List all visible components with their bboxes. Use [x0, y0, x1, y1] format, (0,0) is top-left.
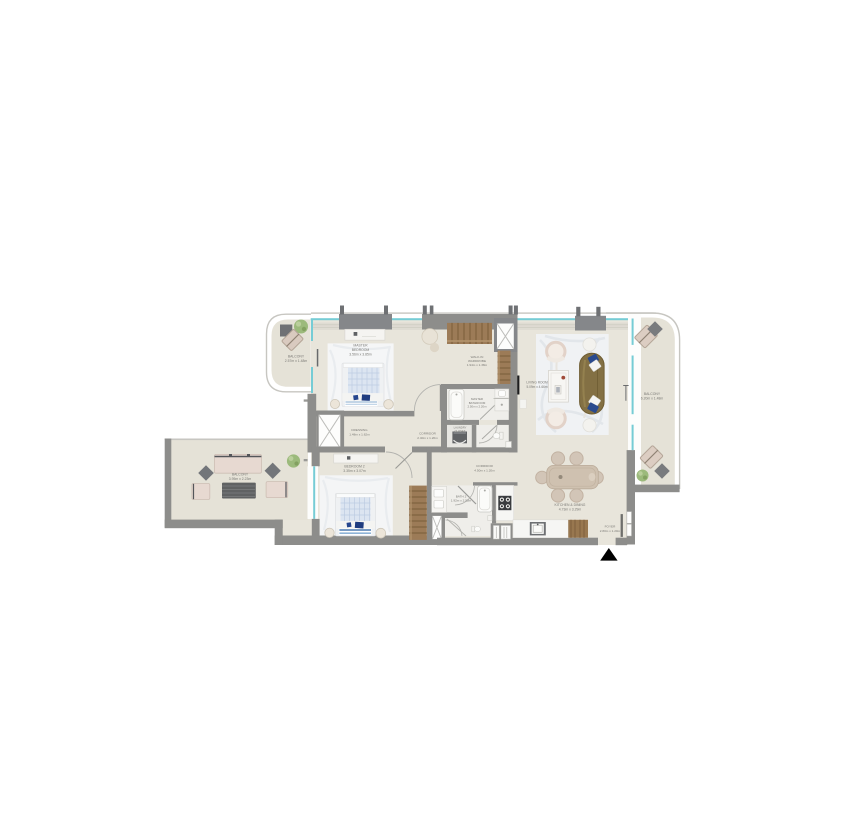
svg-text:2.40m x 1.20m: 2.40m x 1.20m — [417, 436, 438, 440]
svg-text:6.20m x 1.48m: 6.20m x 1.48m — [641, 397, 664, 401]
svg-text:LIVING ROOM: LIVING ROOM — [526, 381, 548, 385]
svg-text:1.48m x 1.62m: 1.48m x 1.62m — [349, 433, 370, 437]
svg-text:2.50m x 2.20m: 2.50m x 2.20m — [467, 405, 487, 409]
svg-text:5.09m x 4.66m: 5.09m x 4.66m — [526, 385, 547, 389]
svg-text:2.80m x 1.20m: 2.80m x 1.20m — [600, 529, 621, 533]
svg-text:3.95m x 2.23m: 3.95m x 2.23m — [229, 477, 252, 481]
svg-text:BALCONY: BALCONY — [232, 473, 249, 477]
svg-text:CORRIDOR: CORRIDOR — [419, 432, 437, 436]
svg-text:DRESSING: DRESSING — [351, 428, 368, 432]
svg-text:BEDROOM 2: BEDROOM 2 — [344, 465, 364, 469]
svg-text:BEDROOM: BEDROOM — [352, 348, 370, 352]
svg-text:2.57m x 1.48m: 2.57m x 1.48m — [285, 359, 308, 363]
svg-text:KITCHEN & DINING: KITCHEN & DINING — [555, 503, 586, 507]
svg-text:1.92m x 2.53m: 1.92m x 2.53m — [451, 499, 472, 503]
svg-text:4.50m x 1.20m: 4.50m x 1.20m — [474, 469, 495, 473]
svg-text:BALCONY: BALCONY — [644, 392, 661, 396]
svg-text:4.73m x 3.29m: 4.73m x 3.29m — [559, 508, 582, 512]
svg-text:3.35m x 3.07m: 3.35m x 3.07m — [343, 469, 366, 473]
svg-text:MASTER: MASTER — [353, 344, 368, 348]
svg-text:CLOSET: CLOSET — [455, 429, 466, 433]
svg-text:BALCONY: BALCONY — [288, 355, 305, 359]
svg-text:3.56m x 3.85m: 3.56m x 3.85m — [349, 353, 372, 357]
svg-text:CORRIDOR: CORRIDOR — [476, 464, 494, 468]
svg-text:1.94m x 1.38m: 1.94m x 1.38m — [467, 363, 488, 367]
